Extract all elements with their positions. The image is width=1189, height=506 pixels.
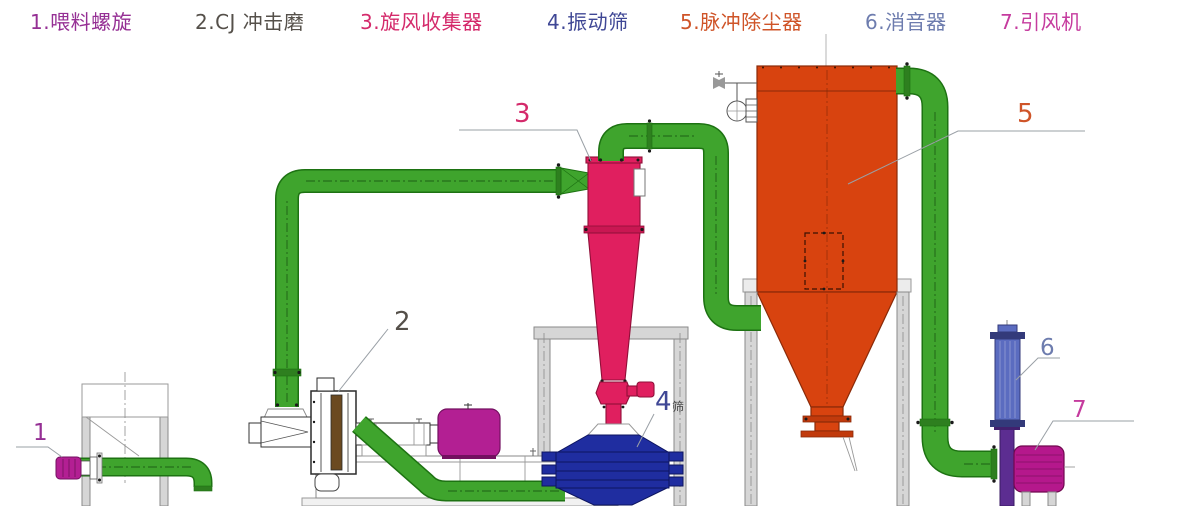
leader-line-6 <box>1016 358 1060 380</box>
callout-3: 3 <box>514 99 531 129</box>
feed-screw-conveyor <box>56 453 212 491</box>
induced-draft-fan <box>1014 446 1075 506</box>
cyclone-collector <box>561 157 654 424</box>
fan-leg <box>1022 492 1030 506</box>
callout-4-suffix: 筛 <box>672 399 684 414</box>
feed-hopper <box>82 372 168 506</box>
callout-7: 7 <box>1072 397 1087 423</box>
diagram-canvas: 1 2 3 4 筛 5 6 7 <box>0 0 1189 506</box>
pulse-air-system <box>713 71 757 122</box>
cyclone-access-door <box>634 169 645 196</box>
collector-outlet-pipe <box>896 62 997 482</box>
callouts: 1 2 3 4 筛 5 6 7 <box>16 99 1134 457</box>
mill-feed-inlet <box>261 417 311 447</box>
leader-line-2 <box>338 329 388 392</box>
leader-line-1 <box>16 447 62 457</box>
cyclone-body <box>588 162 640 231</box>
pulse-dust-collector <box>713 34 911 506</box>
cyclone-inlet-cone <box>561 168 589 194</box>
rotary-valve <box>596 382 654 424</box>
muffler <box>990 320 1025 427</box>
screw-outlet-flange <box>194 486 212 491</box>
rotary-valve-motor <box>637 382 654 397</box>
callout-2: 2 <box>394 307 411 337</box>
callout-1: 1 <box>33 420 48 446</box>
callout-6: 6 <box>1040 335 1055 361</box>
screen-body <box>556 452 669 488</box>
cyclone-cone <box>588 233 640 380</box>
callout-5: 5 <box>1017 99 1034 129</box>
mill-motor <box>438 409 500 457</box>
leader-line-3 <box>459 130 591 161</box>
equipment-flow-diagram: 1.喂料螺旋 2.CJ 冲击磨 3.旋风收集器 4.振动筛 5.脉冲除尘器 6.… <box>0 0 1189 506</box>
screen-inlet-cone <box>558 435 668 452</box>
callout-4: 4 <box>655 387 672 417</box>
collector-discharge <box>815 422 839 431</box>
mill-overhead-pipe <box>273 163 561 407</box>
fan-leg <box>1048 492 1056 506</box>
